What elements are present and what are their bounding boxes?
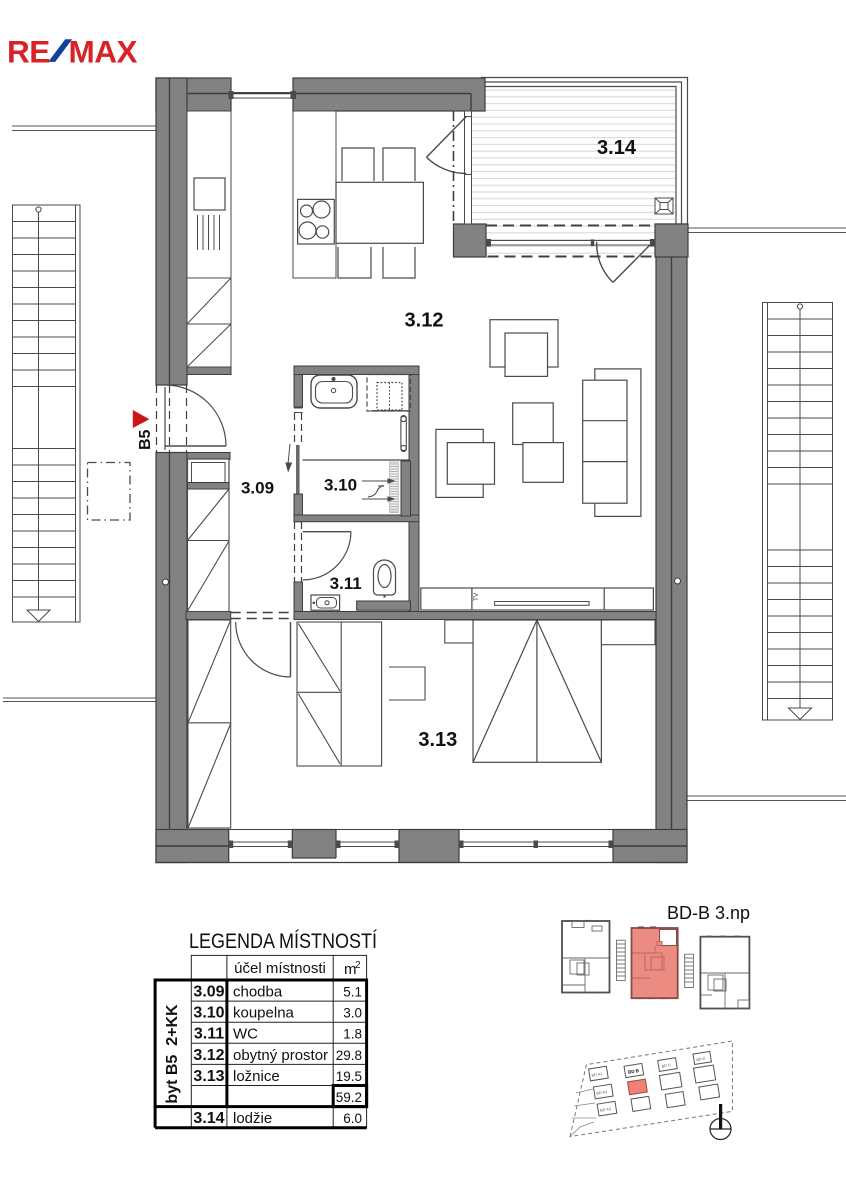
svg-text:3.14: 3.14 (597, 137, 637, 159)
svg-text:1.8: 1.8 (343, 1027, 362, 1042)
svg-text:3.12: 3.12 (193, 1047, 224, 1064)
svg-text:3.13: 3.13 (193, 1068, 224, 1085)
svg-text:29.8: 29.8 (336, 1048, 362, 1063)
svg-text:LEGENDA MÍSTNOSTÍ: LEGENDA MÍSTNOSTÍ (189, 930, 377, 953)
svg-text:BD-B 3.np: BD-B 3.np (667, 903, 750, 923)
svg-text:19.5: 19.5 (336, 1069, 362, 1084)
svg-text:2: 2 (355, 960, 361, 971)
svg-text:3.09: 3.09 (193, 984, 224, 1001)
svg-text:MAX: MAX (69, 34, 138, 70)
svg-text:59.2: 59.2 (336, 1090, 362, 1105)
svg-text:byt B5 2+KK: byt B5 2+KK (164, 1004, 181, 1104)
svg-text:3.0: 3.0 (343, 1006, 362, 1021)
svg-text:3.11: 3.11 (330, 574, 362, 593)
svg-text:3.13: 3.13 (418, 729, 457, 751)
svg-text:3.09: 3.09 (241, 479, 274, 498)
svg-text:lodžie: lodžie (233, 1110, 272, 1127)
svg-text:TV: TV (473, 592, 480, 601)
svg-text:5.1: 5.1 (343, 985, 362, 1000)
svg-text:účel místnosti: účel místnosti (234, 960, 326, 977)
svg-text:ložnice: ložnice (233, 1068, 280, 1085)
svg-text:obytný prostor: obytný prostor (233, 1047, 328, 1064)
svg-text:B5: B5 (137, 429, 154, 450)
svg-text:WC: WC (233, 1026, 258, 1043)
svg-text:RE: RE (7, 34, 50, 70)
svg-text:3.12: 3.12 (405, 310, 444, 332)
svg-text:3.10: 3.10 (324, 476, 357, 495)
svg-text:3.11: 3.11 (194, 1026, 224, 1043)
svg-text:6.0: 6.0 (343, 1111, 362, 1126)
svg-text:chodba: chodba (233, 984, 283, 1001)
svg-text:koupelna: koupelna (233, 1005, 295, 1022)
svg-text:3.10: 3.10 (193, 1005, 224, 1022)
svg-text:3.14: 3.14 (193, 1110, 224, 1127)
